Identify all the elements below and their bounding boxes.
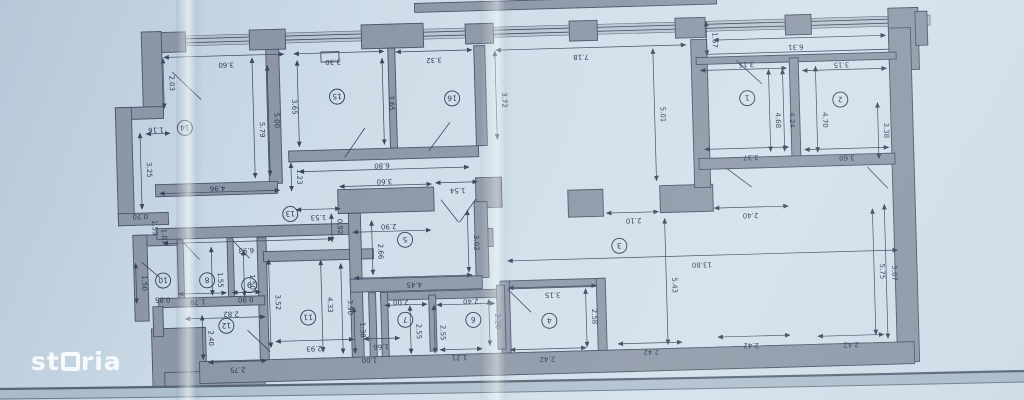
dimension-label: 3.65 (387, 95, 395, 111)
dimension-label: 4.96 (209, 184, 225, 192)
dimension-label: 2.42 (540, 355, 556, 363)
svg-text:13: 13 (285, 209, 295, 218)
dimension-label: 1.23 (295, 169, 303, 185)
dimension-label: 3.60 (377, 177, 393, 185)
dimension-label: 3.15 (738, 60, 754, 68)
dimension-label: 0.92 (335, 219, 343, 235)
room-badge-2: 2 (833, 92, 848, 107)
dimension-label: 2.93 (306, 344, 322, 352)
dimension-label: 1.16 (147, 125, 163, 133)
dimension-label: 3.25 (145, 162, 153, 178)
dimension-label: 3.02 (472, 235, 480, 251)
dimension-label: 1.00 (361, 356, 377, 364)
wall (141, 32, 163, 119)
wall (338, 187, 435, 214)
wall (915, 11, 928, 45)
dimension-label: 7.18 (573, 53, 589, 61)
wall (414, 0, 716, 12)
plan-root: 3.603.303.327.186.313.153.153.373.606.80… (113, 0, 940, 396)
dimension-label: 0.70 (132, 212, 148, 220)
wall (361, 23, 424, 49)
dimension-label: 6.31 (788, 43, 804, 51)
wall (789, 58, 801, 160)
dimension-label: 2.55 (414, 324, 422, 340)
dimension-label: 0.85 (155, 295, 171, 303)
room-badge-10: 10 (155, 273, 170, 288)
dimension-label: 6.93 (238, 246, 254, 254)
dimension-label: 1.67 (710, 32, 718, 48)
dimension-label: 0.90 (238, 295, 254, 303)
plan-rotated: 3.603.303.327.186.313.153.153.373.606.80… (113, 0, 940, 396)
svg-text:6: 6 (471, 315, 476, 324)
wall (465, 23, 494, 44)
dimension-label: 4.45 (406, 280, 422, 288)
dimension-label: 2.82 (223, 309, 239, 317)
svg-text:16: 16 (447, 93, 457, 102)
room-badge-5: 5 (397, 232, 412, 247)
dimension-label: 3.52 (274, 294, 282, 310)
wall (227, 239, 235, 299)
door-swing (183, 242, 199, 260)
photo-of-floor-plan: 3.603.303.327.186.313.153.153.373.606.80… (0, 0, 1024, 400)
dimension-label: 1.21 (451, 353, 467, 361)
wall (569, 20, 598, 41)
dimension-label: 2.40 (743, 211, 759, 219)
floor-plan-svg: 3.603.303.327.186.313.153.153.373.606.80… (0, 0, 1024, 400)
svg-text:2: 2 (838, 95, 843, 104)
wall (429, 295, 438, 351)
dimension-label: 5.07 (890, 265, 898, 281)
room-badge-12: 12 (219, 318, 234, 333)
svg-text:15: 15 (332, 92, 342, 101)
svg-text:8: 8 (204, 275, 209, 284)
walls-layer (113, 0, 937, 396)
wall (785, 14, 812, 35)
dimension-label: 2.40 (463, 297, 479, 305)
dimension-label: 2.42 (743, 341, 759, 349)
dimension-label: 6.80 (374, 161, 390, 169)
dimension-label: 2.42 (643, 348, 659, 356)
dimension-label: 2.55 (438, 325, 446, 341)
wall (157, 223, 353, 239)
dimension-label: 3.60 (839, 153, 855, 161)
door-swing (441, 199, 459, 222)
dimension-label: 4.33 (326, 297, 334, 313)
room-badge-1: 1 (740, 90, 755, 105)
dimension-label: 3.15 (833, 60, 849, 68)
dimension-label: 3.30 (325, 58, 341, 66)
door-swing (727, 168, 752, 188)
room-badge-13: 13 (283, 206, 298, 221)
room-badge-16: 16 (444, 91, 459, 106)
door-swing (507, 288, 531, 313)
wall (699, 153, 895, 169)
svg-text:4: 4 (547, 316, 552, 325)
dimension-label: 5.43 (670, 277, 678, 293)
svg-text:1: 1 (744, 93, 749, 102)
dimension-label: 13.80 (692, 260, 712, 269)
dimension-label: 2.40 (207, 330, 215, 346)
dimension-label: 2.90 (381, 222, 397, 230)
room-badge-15: 15 (329, 89, 344, 104)
dimension-label: 5.79 (258, 122, 266, 138)
dimension-label: 2.00 (393, 298, 409, 306)
dimension-label: 5.01 (658, 107, 666, 123)
dimension-label: 2.20 (493, 313, 501, 329)
door-swing (867, 166, 888, 189)
room-badge-6: 6 (466, 312, 481, 327)
dimension-label: 1.53 (310, 213, 326, 221)
room-badge-8: 8 (199, 273, 214, 288)
dimension-label: 3.60 (218, 60, 234, 68)
dimension-label: 1.38 (358, 322, 366, 338)
dimension-label: 2.42 (843, 340, 859, 348)
room-badge-7: 7 (398, 312, 413, 327)
room-badge-11: 11 (300, 310, 315, 325)
room-badge-14: 14 (177, 120, 192, 135)
dimension-label: 1.66 (373, 342, 389, 350)
dimension-label: 2.75 (230, 365, 246, 373)
dimension-label: 4.68 (774, 112, 782, 128)
dimension-label: 1.55 (216, 272, 224, 288)
doors-layer (136, 52, 892, 355)
svg-text:10: 10 (158, 276, 168, 285)
dimension-label: 4.24 (788, 112, 796, 128)
svg-text:12: 12 (221, 321, 231, 330)
dimension-label: 3.15 (545, 290, 561, 298)
svg-text:11: 11 (303, 313, 313, 322)
dimension-label: 2.66 (376, 244, 384, 260)
dimension-label: 2.10 (626, 216, 642, 224)
dimension-label: 3.72 (500, 92, 508, 108)
dimension-label: 1.07 (160, 229, 168, 245)
wall (660, 184, 714, 212)
svg-text:3: 3 (617, 241, 622, 250)
dimension-label: 3.65 (290, 99, 298, 115)
dimension-label: 1.54 (449, 186, 465, 194)
wall (115, 107, 134, 225)
wall (177, 240, 185, 300)
svg-text:7: 7 (403, 315, 408, 324)
wall (675, 17, 706, 38)
dimensions-layer: 3.603.303.327.186.313.153.153.373.606.80… (128, 16, 901, 376)
dimension-label: 3.37 (743, 153, 759, 161)
dimension-label: 2.03 (167, 75, 175, 91)
svg-text:5: 5 (402, 235, 407, 244)
wall (289, 146, 479, 162)
wall (153, 307, 164, 337)
room-badge-4: 4 (542, 313, 557, 328)
dimension-label: 5.00 (272, 112, 280, 128)
dimension-label: 1.59 (150, 220, 158, 236)
room-badge-3: 3 (612, 238, 627, 253)
dimension-label: 3.38 (882, 122, 890, 138)
dimension-label: 4.70 (821, 112, 829, 128)
wall (568, 189, 604, 217)
dimension-label: 1.50 (140, 275, 148, 291)
dimension-label: 2.58 (590, 309, 598, 325)
svg-text:14: 14 (180, 123, 190, 132)
wall (888, 28, 919, 362)
wall (474, 45, 488, 145)
svg-text:9: 9 (247, 280, 252, 289)
dimension-label: 3.32 (426, 56, 442, 64)
dimension-label: 5.75 (878, 264, 886, 280)
dimension-label: 3.90 (346, 299, 354, 315)
dimension-label: 1.78 (190, 297, 206, 305)
wall (249, 29, 286, 50)
